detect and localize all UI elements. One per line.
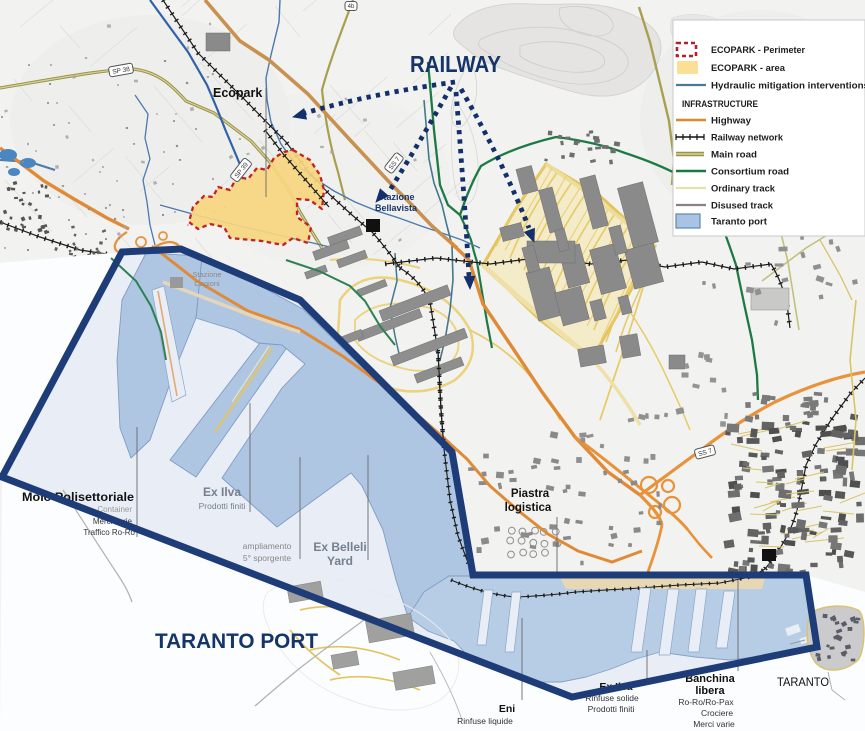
svg-text:Piastra: Piastra bbox=[511, 488, 550, 500]
svg-text:Ex Belleli: Ex Belleli bbox=[313, 540, 366, 554]
svg-text:Merci varie: Merci varie bbox=[693, 719, 735, 729]
svg-text:ampliamento: ampliamento bbox=[243, 541, 292, 551]
svg-text:Prodotti finiti: Prodotti finiti bbox=[199, 501, 246, 511]
svg-text:Hydraulic mitigation intervent: Hydraulic mitigation interventions bbox=[711, 81, 865, 92]
svg-text:Cagioni: Cagioni bbox=[194, 279, 220, 288]
svg-text:ECOPARK - area: ECOPARK - area bbox=[711, 63, 786, 74]
svg-text:Traffico Ro-Ro: Traffico Ro-Ro bbox=[83, 528, 135, 537]
svg-text:TARANTO: TARANTO bbox=[777, 675, 829, 689]
svg-text:INFRASTRUCTURE: INFRASTRUCTURE bbox=[682, 99, 759, 110]
svg-text:Stazione: Stazione bbox=[192, 270, 221, 279]
svg-text:Eni: Eni bbox=[499, 703, 515, 715]
svg-text:Bellavista: Bellavista bbox=[375, 203, 418, 213]
svg-text:Ex Ilva: Ex Ilva bbox=[203, 485, 241, 499]
svg-text:Consortium road: Consortium road bbox=[711, 167, 789, 178]
svg-text:5° sporgente: 5° sporgente bbox=[243, 553, 292, 563]
svg-text:Crociere: Crociere bbox=[701, 708, 733, 718]
svg-text:RAILWAY: RAILWAY bbox=[410, 51, 501, 77]
svg-text:Disused track: Disused track bbox=[711, 201, 774, 212]
svg-text:Ordinary track: Ordinary track bbox=[711, 184, 776, 195]
svg-text:Rinfuse liquide: Rinfuse liquide bbox=[457, 716, 513, 726]
svg-text:Yard: Yard bbox=[327, 554, 353, 568]
svg-text:Taranto port: Taranto port bbox=[711, 217, 768, 228]
svg-text:libera: libera bbox=[695, 685, 725, 697]
svg-text:ECOPARK - Perimeter: ECOPARK - Perimeter bbox=[711, 45, 805, 56]
svg-text:logistica: logistica bbox=[505, 502, 552, 514]
svg-text:Ecopark: Ecopark bbox=[213, 86, 262, 100]
svg-text:Railway network: Railway network bbox=[711, 133, 784, 144]
svg-text:Highway: Highway bbox=[711, 116, 752, 127]
svg-text:4b: 4b bbox=[348, 4, 355, 10]
svg-text:Ro-Ro/Ro-Pax: Ro-Ro/Ro-Pax bbox=[678, 697, 734, 707]
svg-text:TARANTO PORT: TARANTO PORT bbox=[155, 629, 318, 653]
svg-text:Main road: Main road bbox=[711, 150, 757, 161]
svg-text:Prodotti finiti: Prodotti finiti bbox=[588, 704, 635, 714]
